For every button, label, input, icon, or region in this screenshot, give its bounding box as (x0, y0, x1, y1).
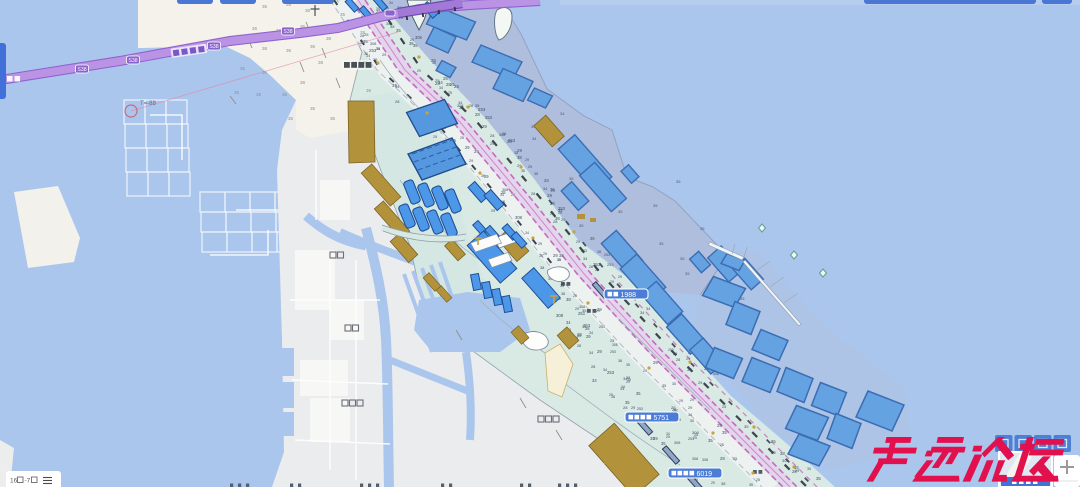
svg-text:35: 35 (676, 179, 681, 184)
svg-text:253: 253 (593, 262, 601, 267)
svg-text:308: 308 (692, 457, 698, 461)
svg-text:29: 29 (469, 158, 473, 163)
svg-text:34: 34 (620, 386, 625, 391)
svg-text:34: 34 (525, 231, 529, 235)
svg-text:28: 28 (623, 405, 628, 410)
svg-text:25: 25 (722, 405, 726, 409)
svg-text:34: 34 (389, 1, 393, 5)
svg-text:35: 35 (744, 424, 749, 429)
svg-text:253: 253 (581, 249, 587, 253)
svg-text:35: 35 (685, 271, 690, 276)
svg-text:36: 36 (310, 44, 316, 49)
svg-text:28: 28 (756, 478, 760, 482)
svg-text:253: 253 (508, 138, 516, 143)
svg-text:28: 28 (469, 104, 473, 108)
svg-text:34: 34 (560, 111, 565, 116)
svg-text:29: 29 (590, 236, 595, 241)
svg-text:-7: -7 (25, 478, 31, 485)
svg-text:35: 35 (282, 92, 288, 97)
svg-text:25: 25 (373, 57, 378, 62)
svg-text:308: 308 (579, 305, 585, 309)
svg-text:29: 29 (653, 360, 658, 365)
svg-text:34: 34 (543, 187, 547, 191)
svg-text:35: 35 (432, 61, 436, 65)
svg-text:28: 28 (531, 191, 535, 196)
svg-text:35: 35 (700, 226, 705, 231)
svg-text:29: 29 (690, 398, 694, 402)
svg-text:29: 29 (484, 174, 489, 179)
svg-text:38: 38 (618, 359, 622, 363)
svg-text:29: 29 (673, 351, 677, 356)
svg-text:28: 28 (544, 178, 549, 183)
svg-text:308: 308 (502, 188, 508, 192)
svg-text:T=-88: T=-88 (140, 101, 157, 107)
svg-text:28: 28 (475, 112, 480, 117)
svg-text:38: 38 (318, 60, 324, 65)
svg-text:34: 34 (439, 86, 443, 90)
svg-text:35: 35 (234, 90, 240, 95)
svg-text:25: 25 (733, 457, 737, 461)
svg-text:308: 308 (415, 35, 423, 40)
svg-text:35: 35 (240, 66, 246, 71)
svg-text:35: 35 (376, 47, 380, 51)
svg-text:29: 29 (490, 142, 494, 146)
svg-text:38: 38 (566, 297, 571, 302)
svg-text:29: 29 (561, 217, 566, 222)
svg-text:25: 25 (771, 439, 776, 444)
svg-text:36: 36 (305, 8, 311, 13)
svg-text:38: 38 (517, 155, 522, 160)
svg-text:29: 29 (547, 193, 552, 198)
svg-text:25: 25 (686, 357, 690, 361)
svg-text:29: 29 (631, 406, 635, 410)
svg-text:35: 35 (459, 105, 464, 110)
svg-text:28: 28 (511, 193, 515, 197)
svg-text:29: 29 (576, 240, 580, 244)
svg-text:29: 29 (643, 369, 647, 373)
svg-text:S38: S38 (77, 67, 86, 73)
svg-text:38: 38 (256, 92, 262, 97)
svg-text:29: 29 (597, 349, 602, 354)
svg-text:16: 16 (10, 478, 18, 485)
svg-text:25: 25 (450, 82, 455, 87)
svg-text:29: 29 (550, 212, 554, 216)
svg-text:29: 29 (688, 406, 692, 410)
svg-text:29: 29 (558, 211, 562, 215)
svg-text:253: 253 (610, 350, 616, 354)
svg-text:28: 28 (720, 443, 724, 447)
svg-text:38: 38 (390, 24, 395, 29)
svg-text:29: 29 (717, 423, 722, 428)
svg-text:38: 38 (555, 216, 560, 221)
svg-text:28: 28 (395, 99, 400, 104)
svg-text:38: 38 (300, 80, 306, 85)
svg-text:25: 25 (543, 252, 547, 256)
svg-text:35: 35 (618, 209, 623, 214)
svg-text:253: 253 (637, 407, 643, 411)
svg-text:28: 28 (672, 408, 676, 412)
svg-text:29: 29 (586, 334, 591, 339)
svg-text:38: 38 (521, 169, 525, 173)
svg-text:35: 35 (653, 203, 658, 208)
svg-text:35: 35 (557, 258, 561, 262)
svg-text:29: 29 (474, 149, 479, 154)
svg-text:28: 28 (490, 133, 495, 138)
svg-text:35: 35 (626, 363, 630, 367)
svg-text:38: 38 (540, 266, 544, 270)
svg-text:29: 29 (465, 145, 470, 150)
svg-text:35: 35 (687, 367, 692, 372)
svg-text:28: 28 (573, 294, 577, 298)
svg-text:34: 34 (688, 413, 692, 417)
svg-text:253: 253 (578, 311, 586, 316)
svg-text:28: 28 (792, 469, 797, 474)
svg-text:25: 25 (693, 436, 697, 440)
svg-text:28: 28 (591, 364, 595, 369)
svg-text:S38: S38 (283, 29, 292, 35)
svg-text:29: 29 (596, 309, 600, 313)
svg-text:35: 35 (659, 241, 664, 246)
svg-text:29: 29 (720, 456, 725, 461)
svg-text:35: 35 (534, 172, 538, 176)
svg-text:29: 29 (382, 52, 386, 57)
svg-text:253: 253 (583, 323, 591, 328)
svg-text:308: 308 (782, 458, 789, 463)
svg-text:34: 34 (500, 193, 504, 197)
svg-text:29: 29 (482, 124, 487, 129)
svg-text:29: 29 (433, 135, 437, 139)
svg-text:36: 36 (286, 48, 292, 53)
svg-text:25: 25 (448, 91, 452, 95)
svg-text:5751: 5751 (654, 415, 670, 422)
svg-text:36: 36 (366, 88, 372, 93)
svg-text:36: 36 (252, 26, 258, 31)
svg-text:25: 25 (609, 393, 613, 397)
svg-text:308: 308 (515, 215, 523, 220)
svg-text:34: 34 (592, 378, 597, 383)
svg-text:25: 25 (666, 435, 670, 439)
svg-text:28: 28 (597, 250, 601, 254)
svg-text:38: 38 (780, 451, 785, 456)
svg-text:28: 28 (577, 344, 581, 348)
svg-text:25: 25 (460, 136, 464, 140)
svg-text:35: 35 (690, 419, 694, 423)
svg-text:35: 35 (413, 43, 418, 48)
svg-text:29: 29 (525, 158, 529, 162)
svg-text:253: 253 (604, 253, 610, 257)
svg-text:35: 35 (722, 430, 727, 435)
svg-text:29: 29 (679, 399, 683, 403)
svg-text:253: 253 (599, 325, 605, 329)
svg-text:29: 29 (711, 481, 715, 485)
svg-text:28: 28 (550, 201, 555, 206)
svg-text:35: 35 (807, 467, 811, 471)
svg-text:36: 36 (330, 116, 336, 121)
svg-text:34: 34 (589, 351, 593, 355)
svg-text:308: 308 (556, 313, 564, 318)
svg-text:253: 253 (607, 262, 614, 267)
svg-text:34: 34 (366, 54, 370, 58)
svg-text:308: 308 (702, 458, 708, 462)
svg-text:28: 28 (435, 81, 440, 86)
svg-text:35: 35 (340, 12, 346, 17)
svg-text:38: 38 (326, 36, 332, 41)
svg-text:308: 308 (612, 343, 618, 347)
svg-text:38: 38 (262, 46, 268, 51)
svg-text:28: 28 (595, 268, 599, 272)
svg-text:28: 28 (502, 131, 506, 136)
svg-text:29: 29 (410, 38, 414, 42)
svg-text:35: 35 (662, 384, 666, 388)
svg-text:34: 34 (646, 307, 650, 311)
svg-text:35: 35 (816, 476, 821, 481)
svg-text:35: 35 (627, 378, 631, 382)
svg-text:29: 29 (528, 165, 532, 169)
svg-text:1988: 1988 (621, 292, 637, 299)
svg-text:38: 38 (561, 292, 565, 296)
svg-text:29: 29 (618, 275, 622, 279)
svg-text:6019: 6019 (697, 471, 713, 478)
svg-text:29: 29 (551, 189, 555, 193)
svg-text:34: 34 (566, 320, 571, 325)
svg-text:29: 29 (491, 209, 495, 213)
svg-text:308: 308 (370, 42, 376, 46)
svg-text:253: 253 (607, 370, 615, 375)
svg-text:35: 35 (650, 436, 655, 441)
svg-text:38: 38 (721, 481, 726, 486)
svg-text:35: 35 (569, 176, 574, 181)
svg-text:25: 25 (454, 84, 459, 89)
svg-text:S38: S38 (209, 44, 218, 50)
svg-text:29: 29 (538, 242, 542, 246)
svg-text:29: 29 (417, 69, 421, 73)
svg-text:35: 35 (661, 441, 666, 446)
svg-text:35: 35 (579, 223, 584, 228)
svg-text:29: 29 (610, 280, 614, 284)
svg-text:34: 34 (532, 136, 537, 141)
svg-text:28: 28 (676, 358, 680, 362)
svg-text:35: 35 (672, 382, 676, 386)
svg-text:253: 253 (485, 115, 493, 120)
svg-text:35: 35 (680, 256, 685, 261)
svg-text:38: 38 (360, 30, 366, 35)
svg-text:35: 35 (771, 450, 776, 455)
svg-text:35: 35 (708, 438, 713, 443)
svg-text:S38: S38 (128, 58, 137, 64)
svg-text:308: 308 (674, 441, 680, 445)
svg-text:35: 35 (636, 391, 641, 396)
svg-text:35: 35 (262, 4, 268, 9)
svg-text:35: 35 (310, 106, 316, 111)
svg-text:29: 29 (698, 380, 702, 385)
svg-text:36: 36 (288, 116, 294, 121)
svg-text:35: 35 (749, 483, 753, 487)
